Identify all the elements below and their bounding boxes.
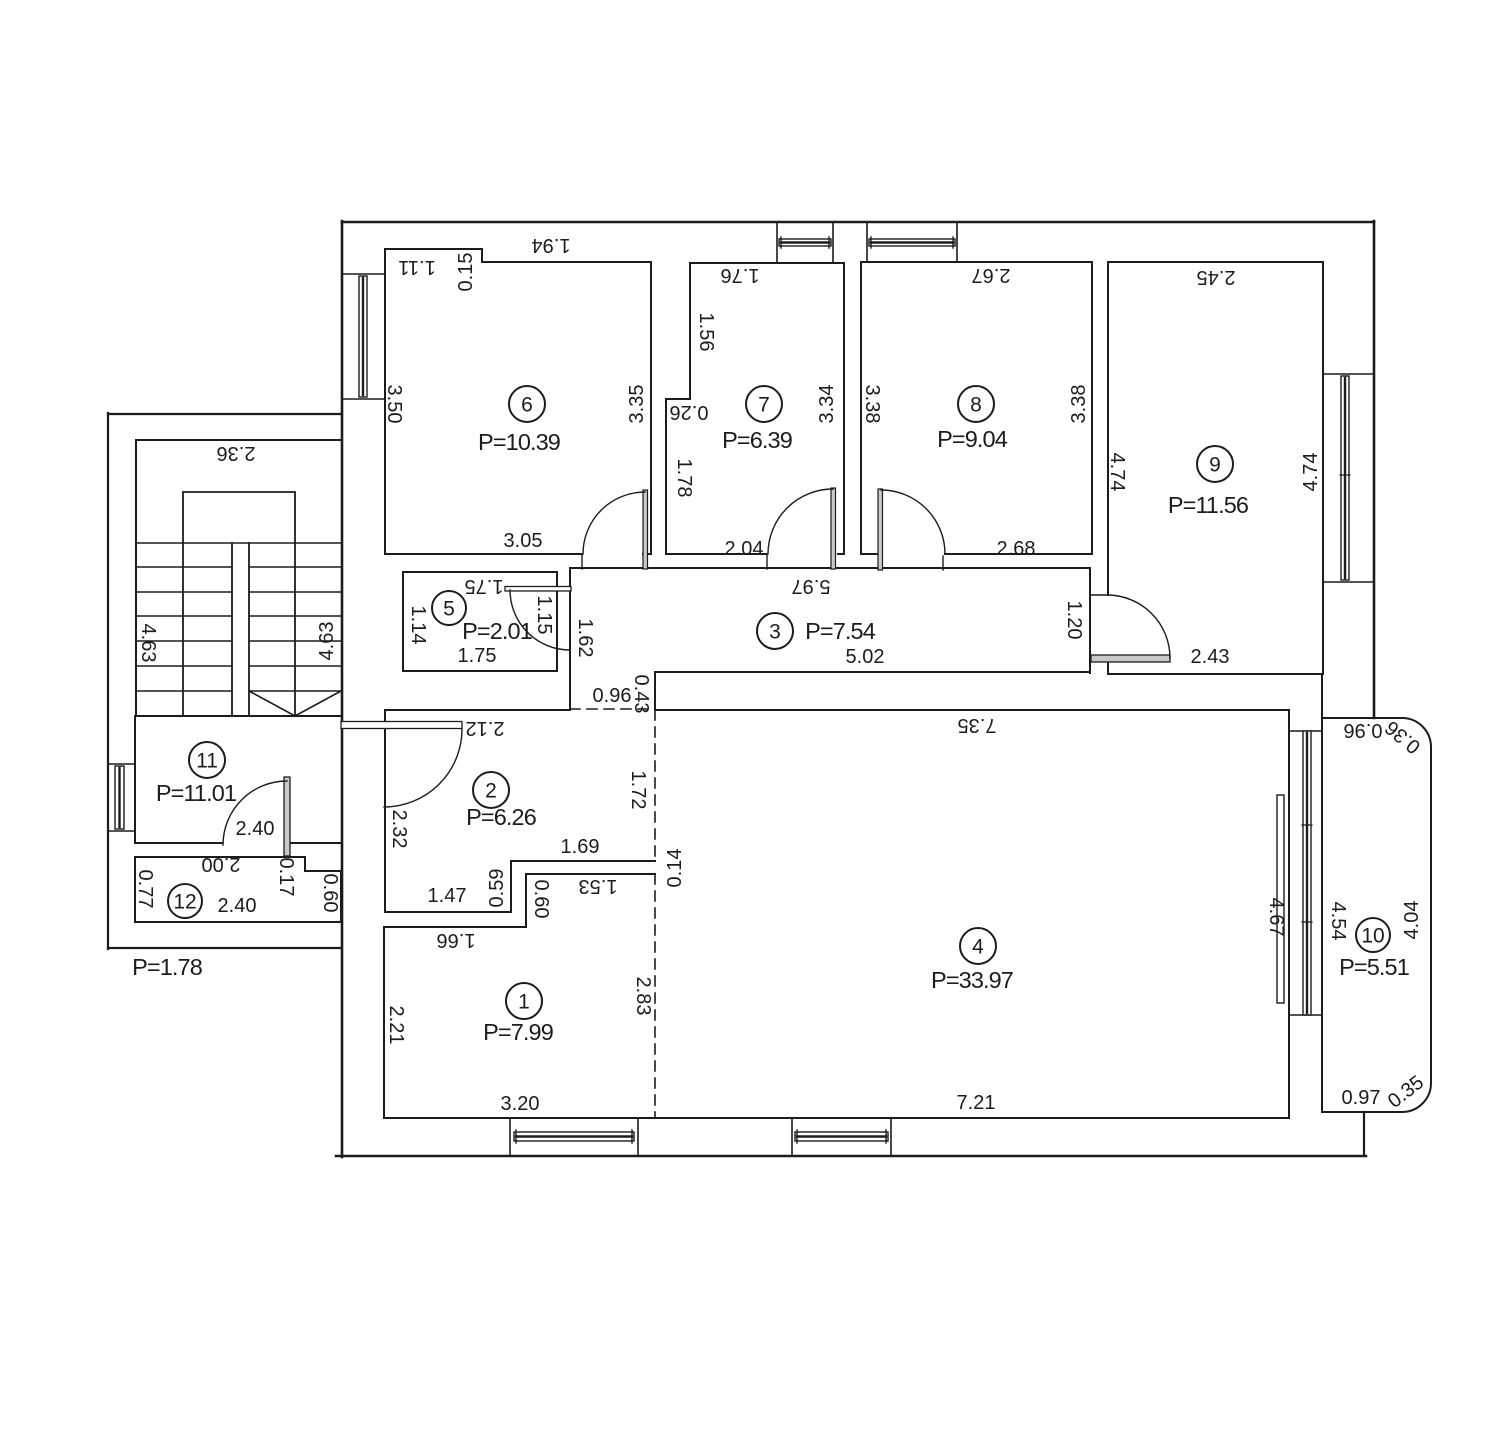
svg-text:4.74: 4.74 bbox=[1106, 453, 1128, 492]
svg-text:3.35: 3.35 bbox=[626, 385, 648, 424]
svg-text:2.67: 2.67 bbox=[972, 264, 1011, 286]
svg-text:2: 2 bbox=[485, 780, 497, 803]
svg-text:4.67: 4.67 bbox=[1265, 898, 1287, 937]
svg-text:5.97: 5.97 bbox=[792, 575, 831, 597]
svg-text:1.47: 1.47 bbox=[428, 885, 467, 907]
svg-text:1.69: 1.69 bbox=[561, 836, 600, 858]
svg-text:2.21: 2.21 bbox=[385, 1006, 407, 1045]
svg-text:P=7.54: P=7.54 bbox=[805, 618, 876, 644]
svg-text:1.78: 1.78 bbox=[673, 459, 695, 498]
svg-text:4.74: 4.74 bbox=[1300, 453, 1322, 492]
svg-text:1.75: 1.75 bbox=[465, 575, 504, 597]
svg-text:0.59: 0.59 bbox=[486, 869, 508, 908]
svg-text:2.36: 2.36 bbox=[217, 442, 256, 464]
svg-text:10: 10 bbox=[1361, 925, 1384, 948]
svg-text:1.72: 1.72 bbox=[627, 771, 649, 810]
svg-text:0.43: 0.43 bbox=[630, 675, 652, 714]
svg-text:7.35: 7.35 bbox=[958, 714, 997, 736]
svg-text:P=6.26: P=6.26 bbox=[466, 804, 537, 830]
svg-text:P=9.04: P=9.04 bbox=[937, 426, 1008, 452]
svg-text:5.02: 5.02 bbox=[846, 646, 885, 668]
svg-text:0.60: 0.60 bbox=[530, 880, 552, 919]
svg-text:7: 7 bbox=[758, 394, 770, 417]
svg-text:0.60: 0.60 bbox=[319, 874, 341, 913]
svg-text:4.54: 4.54 bbox=[1327, 902, 1349, 941]
svg-text:0.96: 0.96 bbox=[593, 685, 632, 707]
svg-text:1.20: 1.20 bbox=[1063, 601, 1085, 640]
svg-text:P=5.51: P=5.51 bbox=[1339, 954, 1409, 980]
svg-text:1.75: 1.75 bbox=[458, 645, 497, 667]
svg-text:4: 4 bbox=[972, 936, 984, 959]
svg-text:2.04: 2.04 bbox=[725, 538, 764, 560]
svg-text:P=10.39: P=10.39 bbox=[478, 429, 560, 455]
svg-text:3.50: 3.50 bbox=[383, 385, 405, 424]
svg-text:12: 12 bbox=[173, 891, 196, 914]
svg-text:8: 8 bbox=[970, 394, 982, 417]
svg-text:1.94: 1.94 bbox=[532, 234, 571, 256]
svg-text:P=11.56: P=11.56 bbox=[1168, 492, 1249, 518]
svg-text:4.04: 4.04 bbox=[1401, 901, 1423, 940]
svg-text:0.17: 0.17 bbox=[275, 858, 297, 897]
svg-text:1.62: 1.62 bbox=[574, 619, 596, 658]
svg-text:P=11.01: P=11.01 bbox=[156, 780, 236, 806]
svg-text:0.14: 0.14 bbox=[664, 849, 686, 888]
svg-text:2.43: 2.43 bbox=[1191, 646, 1230, 668]
svg-text:P=6.39: P=6.39 bbox=[722, 427, 792, 453]
svg-text:2.40: 2.40 bbox=[218, 895, 257, 917]
svg-text:2.68: 2.68 bbox=[997, 538, 1036, 560]
svg-text:9: 9 bbox=[1209, 454, 1221, 477]
svg-text:1.56: 1.56 bbox=[695, 313, 717, 352]
svg-text:3.34: 3.34 bbox=[816, 385, 838, 424]
svg-text:1.76: 1.76 bbox=[721, 264, 760, 286]
svg-text:1: 1 bbox=[518, 991, 530, 1014]
svg-text:3.05: 3.05 bbox=[504, 530, 543, 552]
svg-text:1.66: 1.66 bbox=[437, 929, 476, 951]
svg-text:0.97: 0.97 bbox=[1342, 1087, 1381, 1109]
svg-text:0.26: 0.26 bbox=[670, 401, 709, 423]
svg-text:0.77: 0.77 bbox=[134, 870, 156, 909]
svg-text:3.38: 3.38 bbox=[861, 385, 883, 424]
svg-text:P=33.97: P=33.97 bbox=[931, 967, 1013, 993]
svg-text:1.14: 1.14 bbox=[407, 606, 429, 645]
svg-text:0.15: 0.15 bbox=[455, 253, 477, 292]
svg-text:2.12: 2.12 bbox=[466, 717, 505, 739]
svg-text:2.40: 2.40 bbox=[236, 818, 275, 840]
svg-text:4.63: 4.63 bbox=[316, 622, 338, 661]
svg-text:3.20: 3.20 bbox=[501, 1093, 540, 1115]
svg-text:P=2.01: P=2.01 bbox=[462, 618, 532, 644]
svg-text:7.21: 7.21 bbox=[957, 1092, 996, 1114]
svg-text:2.32: 2.32 bbox=[388, 810, 410, 849]
svg-text:5: 5 bbox=[443, 598, 455, 621]
svg-text:2.83: 2.83 bbox=[632, 977, 654, 1016]
svg-text:4.63: 4.63 bbox=[137, 624, 159, 663]
svg-text:1.11: 1.11 bbox=[398, 256, 435, 278]
svg-text:1.53: 1.53 bbox=[579, 875, 618, 897]
svg-text:2.00: 2.00 bbox=[202, 853, 241, 875]
svg-text:P=1.78: P=1.78 bbox=[132, 954, 203, 980]
svg-text:P=7.99: P=7.99 bbox=[483, 1019, 553, 1045]
svg-text:2.45: 2.45 bbox=[1197, 266, 1236, 288]
svg-text:11: 11 bbox=[196, 750, 218, 773]
svg-text:0.96: 0.96 bbox=[1344, 719, 1383, 741]
svg-text:1.15: 1.15 bbox=[533, 596, 555, 635]
svg-text:6: 6 bbox=[521, 394, 533, 417]
svg-text:3.38: 3.38 bbox=[1068, 385, 1090, 424]
svg-text:3: 3 bbox=[769, 621, 781, 644]
